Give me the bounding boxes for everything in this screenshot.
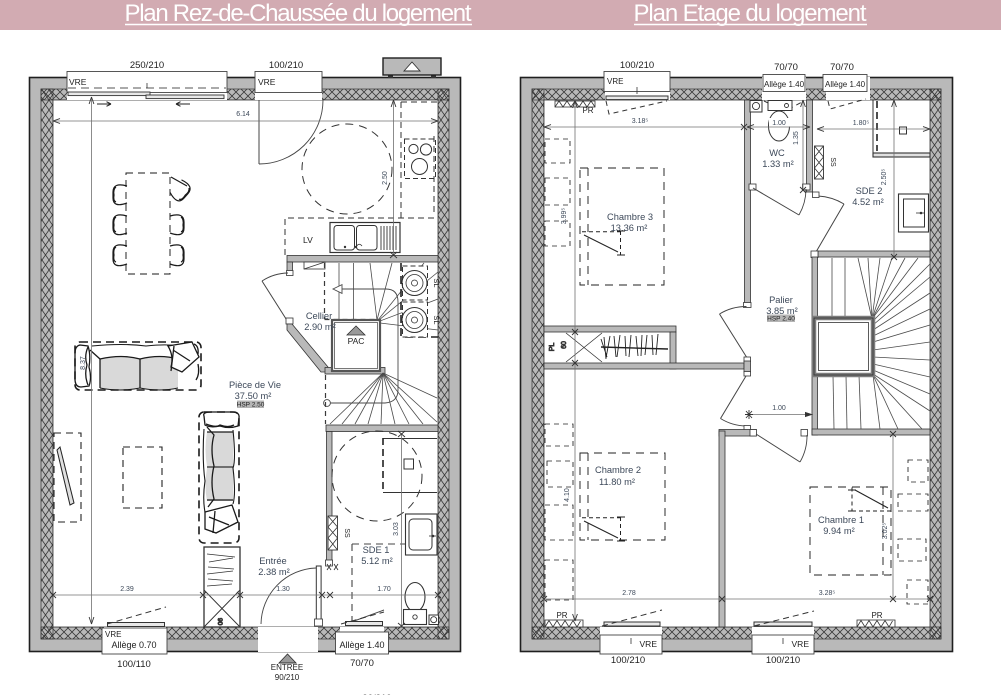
svg-text:2.38 m²: 2.38 m² bbox=[258, 567, 290, 577]
svg-text:70/70: 70/70 bbox=[350, 658, 374, 669]
svg-text:ENTREE: ENTREE bbox=[271, 663, 303, 672]
svg-text:70/70: 70/70 bbox=[774, 62, 798, 73]
svg-text:5.12 m²: 5.12 m² bbox=[361, 556, 393, 566]
svg-text:90: 90 bbox=[216, 618, 223, 626]
svg-text:3.03: 3.03 bbox=[393, 522, 400, 536]
svg-text:Palier: Palier bbox=[769, 295, 793, 305]
svg-text:37.50 m²: 37.50 m² bbox=[235, 391, 272, 401]
svg-text:3.02⁵: 3.02⁵ bbox=[882, 523, 889, 540]
svg-text:9.94 m²: 9.94 m² bbox=[823, 526, 855, 536]
svg-text:1.00: 1.00 bbox=[772, 120, 786, 127]
svg-text:PR: PR bbox=[556, 611, 567, 620]
svg-text:VRE: VRE bbox=[258, 77, 276, 87]
svg-text:VRE: VRE bbox=[69, 77, 87, 87]
svg-text:4.52 m²: 4.52 m² bbox=[852, 197, 884, 207]
svg-text:11.80 m²: 11.80 m² bbox=[599, 477, 635, 487]
svg-text:HSP 2.50: HSP 2.50 bbox=[237, 402, 265, 409]
svg-text:100/210: 100/210 bbox=[611, 655, 645, 666]
svg-text:Plan Etage du logement: Plan Etage du logement bbox=[634, 0, 867, 27]
svg-text:Chambre 2: Chambre 2 bbox=[595, 465, 641, 475]
svg-text:VRE: VRE bbox=[640, 639, 658, 649]
svg-text:SDE 2: SDE 2 bbox=[856, 186, 883, 196]
svg-text:VRE: VRE bbox=[792, 639, 810, 649]
svg-text:8.37: 8.37 bbox=[80, 356, 87, 370]
svg-text:2.50⁵: 2.50⁵ bbox=[881, 169, 888, 186]
svg-text:3.28⁵: 3.28⁵ bbox=[819, 590, 836, 597]
svg-text:LV: LV bbox=[303, 235, 313, 245]
svg-text:Allège 1.40: Allège 1.40 bbox=[825, 80, 866, 89]
svg-text:Entrée: Entrée bbox=[259, 556, 286, 566]
svg-text:100/210: 100/210 bbox=[269, 60, 303, 71]
svg-text:SS: SS bbox=[829, 157, 836, 167]
svg-text:100/210: 100/210 bbox=[620, 60, 654, 71]
svg-text:Allège 1.40: Allège 1.40 bbox=[764, 80, 805, 89]
svg-text:PR: PR bbox=[582, 106, 593, 115]
svg-text:SL: SL bbox=[432, 315, 441, 324]
svg-text:SL: SL bbox=[432, 278, 441, 287]
svg-text:3.99⁵: 3.99⁵ bbox=[561, 208, 568, 225]
svg-text:90/210: 90/210 bbox=[275, 673, 300, 682]
svg-text:SS: SS bbox=[343, 528, 350, 538]
svg-text:Pièce de Vie: Pièce de Vie bbox=[229, 380, 281, 390]
svg-text:VRE: VRE bbox=[607, 77, 623, 86]
svg-text:60: 60 bbox=[561, 341, 568, 349]
svg-text:Allège 0.70: Allège 0.70 bbox=[111, 640, 156, 650]
svg-text:6.14: 6.14 bbox=[236, 111, 250, 118]
svg-text:2.90 m²: 2.90 m² bbox=[304, 322, 336, 332]
svg-text:1.35: 1.35 bbox=[793, 131, 800, 145]
svg-text:1.00: 1.00 bbox=[772, 405, 786, 412]
svg-text:2.78: 2.78 bbox=[622, 590, 636, 597]
svg-text:1.33 m²: 1.33 m² bbox=[762, 159, 794, 169]
svg-text:3.18⁵: 3.18⁵ bbox=[632, 118, 649, 125]
svg-text:PL: PL bbox=[549, 343, 556, 352]
svg-text:Cellier: Cellier bbox=[306, 311, 332, 321]
svg-text:70/70: 70/70 bbox=[830, 62, 854, 73]
svg-text:VRE: VRE bbox=[105, 630, 121, 639]
svg-text:250/210: 250/210 bbox=[130, 60, 164, 71]
svg-text:HSP 2.40: HSP 2.40 bbox=[767, 316, 795, 323]
svg-text:1.30: 1.30 bbox=[276, 586, 290, 593]
svg-text:WC: WC bbox=[769, 148, 785, 158]
svg-text:100/210: 100/210 bbox=[766, 655, 800, 666]
svg-text:Allège 1.40: Allège 1.40 bbox=[339, 640, 384, 650]
svg-text:4.10: 4.10 bbox=[564, 488, 571, 502]
svg-text:1.80⁵: 1.80⁵ bbox=[853, 120, 870, 127]
svg-text:PAC: PAC bbox=[348, 336, 365, 346]
svg-text:PR: PR bbox=[871, 611, 882, 620]
svg-text:2.50: 2.50 bbox=[382, 171, 389, 185]
svg-text:SDE 1: SDE 1 bbox=[363, 545, 390, 555]
svg-text:100/110: 100/110 bbox=[117, 659, 151, 670]
svg-text:Plan Rez-de-Chaussée du logeme: Plan Rez-de-Chaussée du logement bbox=[125, 0, 472, 27]
svg-text:1.70: 1.70 bbox=[377, 586, 391, 593]
svg-text:13.36 m²: 13.36 m² bbox=[611, 223, 648, 233]
svg-text:2.39: 2.39 bbox=[120, 586, 134, 593]
svg-text:Chambre 3: Chambre 3 bbox=[607, 212, 653, 222]
svg-text:Chambre 1: Chambre 1 bbox=[818, 515, 864, 525]
